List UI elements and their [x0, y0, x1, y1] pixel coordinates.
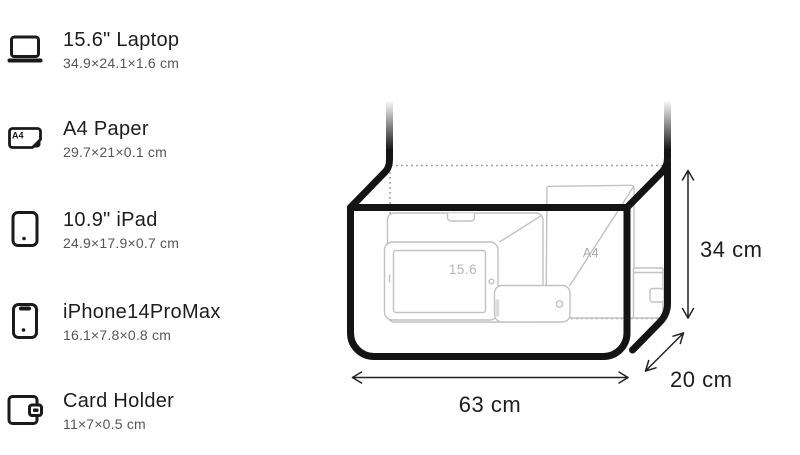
bag-right-back-edge	[633, 162, 668, 350]
smartphone-wireframe	[495, 286, 571, 323]
a4-wireframe-label: A4	[583, 246, 599, 260]
bag-dimension-diagram: 15.6 A4	[0, 0, 800, 455]
bag-size-guide: 15.6" Laptop 34.9×24.1×1.6 cm A4 A4 Pape…	[0, 0, 800, 455]
bag-left-strap	[351, 98, 390, 208]
laptop-wireframe-label: 15.6	[449, 262, 477, 277]
tablet-wireframe	[385, 242, 499, 320]
width-dimension-label: 63 cm	[459, 392, 521, 417]
depth-dimension-arrow	[646, 333, 684, 371]
height-dimension-label: 34 cm	[700, 237, 762, 262]
card-holder-wireframe	[634, 268, 665, 318]
height-dimension-arrow	[683, 171, 694, 319]
depth-dimension-label: 20 cm	[670, 367, 732, 392]
width-dimension-arrow	[353, 372, 629, 383]
